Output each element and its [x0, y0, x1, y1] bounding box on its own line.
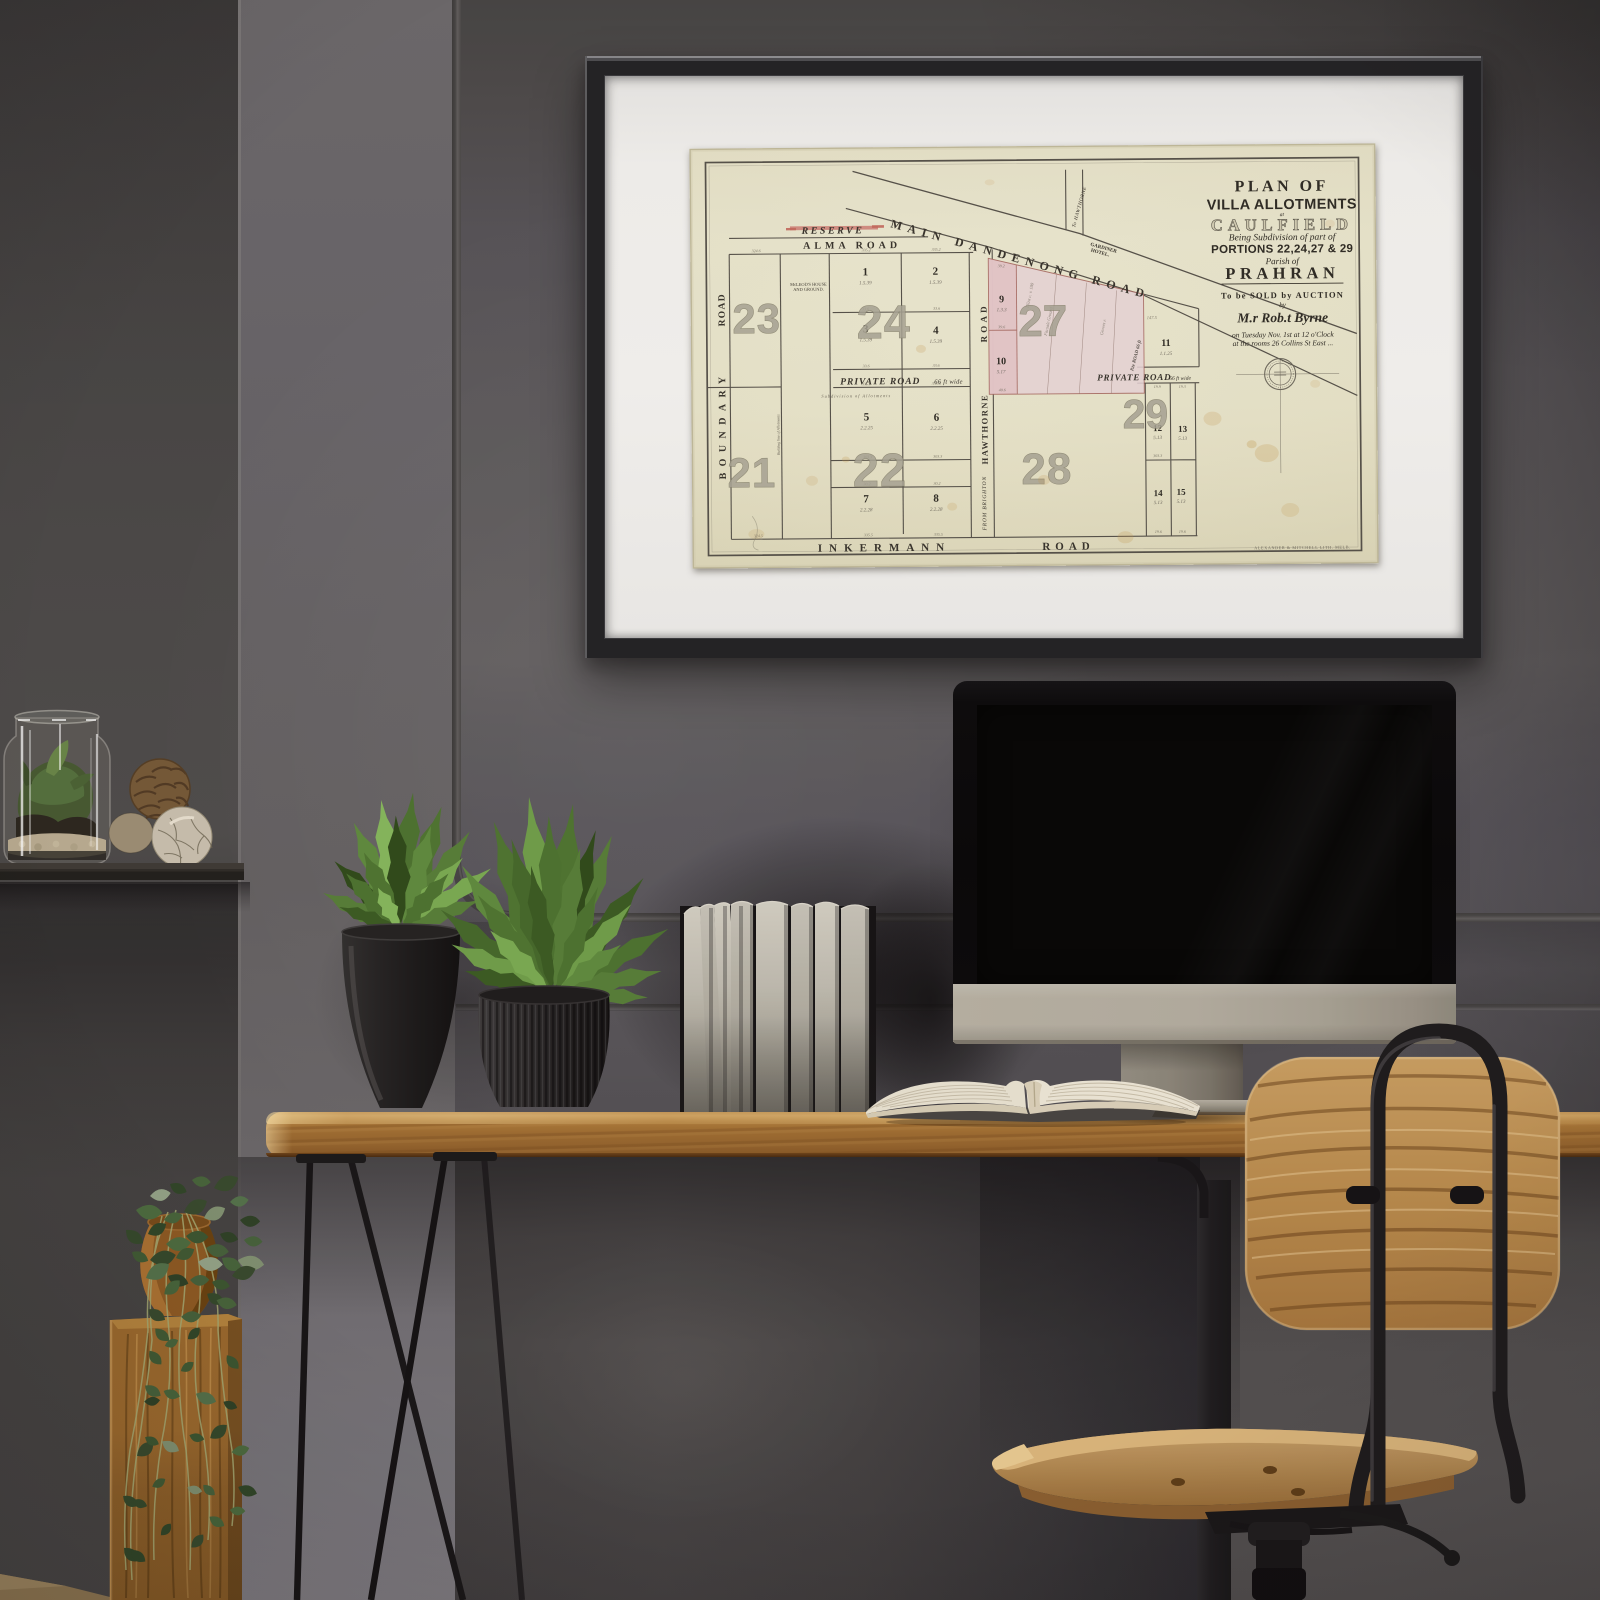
- svg-text:RESERVE: RESERVE: [801, 225, 865, 237]
- svg-text:6: 6: [934, 412, 940, 424]
- svg-text:PRIVATE ROAD: PRIVATE ROAD: [1097, 372, 1171, 383]
- svg-text:24: 24: [856, 295, 911, 348]
- svg-text:22: 22: [853, 443, 908, 496]
- svg-text:4: 4: [933, 325, 939, 337]
- svg-text:1.3.3: 1.3.3: [997, 308, 1008, 313]
- svg-text:15: 15: [1177, 487, 1187, 497]
- svg-text:1.5.39: 1.5.39: [930, 340, 943, 345]
- svg-text:335.5: 335.5: [864, 532, 873, 537]
- svg-text:INKERMANN: INKERMANN: [818, 542, 951, 555]
- svg-text:PRAHRAN: PRAHRAN: [1225, 263, 1339, 283]
- svg-text:14: 14: [1154, 488, 1164, 498]
- svg-text:Building line of Allotments: Building line of Allotments: [776, 414, 780, 455]
- svg-text:5.17: 5.17: [997, 370, 1006, 375]
- svg-text:39.2: 39.2: [998, 263, 1005, 268]
- svg-text:19.6: 19.6: [1155, 529, 1162, 534]
- svg-text:33.6: 33.6: [863, 363, 870, 368]
- svg-text:303.3: 303.3: [933, 454, 942, 459]
- svg-text:11: 11: [1161, 338, 1171, 349]
- svg-text:335.5: 335.5: [934, 532, 943, 537]
- svg-text:PRIVATE ROAD: PRIVATE ROAD: [840, 377, 920, 388]
- svg-text:1: 1: [863, 266, 869, 278]
- svg-text:8: 8: [933, 493, 939, 505]
- svg-text:M.r Rob.t Byrne: M.r Rob.t Byrne: [1236, 310, 1328, 326]
- svg-text:9: 9: [999, 294, 1004, 305]
- svg-text:147.5: 147.5: [1147, 315, 1158, 320]
- svg-text:AND GROUND.: AND GROUND.: [793, 287, 824, 292]
- svg-text:PORTIONS 22,24,27 & 29: PORTIONS 22,24,27 & 29: [1211, 243, 1353, 256]
- svg-text:1.5.39: 1.5.39: [929, 281, 942, 286]
- svg-text:1.1.25: 1.1.25: [1160, 352, 1173, 357]
- svg-text:Being Subdivision of part of: Being Subdivision of part of: [1229, 232, 1337, 244]
- svg-text:Subdivision of Allotments: Subdivision of Allotments: [821, 393, 891, 399]
- svg-text:10: 10: [996, 356, 1006, 367]
- svg-text:33.6: 33.6: [933, 363, 940, 368]
- svg-text:19.3: 19.3: [1179, 384, 1186, 389]
- svg-text:ALMA ROAD: ALMA ROAD: [803, 240, 901, 252]
- svg-text:19.6: 19.6: [1179, 529, 1186, 534]
- svg-text:27: 27: [1018, 297, 1067, 346]
- svg-text:2.2.25: 2.2.25: [930, 427, 943, 432]
- svg-text:29: 29: [1122, 391, 1168, 437]
- svg-text:303.3: 303.3: [1153, 453, 1162, 458]
- svg-text:FROM BRIGHTON: FROM BRIGHTON: [982, 476, 988, 531]
- svg-text:335.2: 335.2: [862, 247, 871, 252]
- svg-text:40.6: 40.6: [999, 387, 1006, 392]
- svg-text:ROAD: ROAD: [979, 304, 989, 342]
- svg-text:13: 13: [1178, 424, 1188, 434]
- svg-text:335.6: 335.6: [862, 381, 871, 386]
- svg-text:at the rooms 26 Collins St Eas: at the rooms 26 Collins St East ...: [1233, 338, 1334, 348]
- svg-text:2.2.25: 2.2.25: [860, 426, 873, 431]
- svg-text:335.2: 335.2: [932, 247, 941, 252]
- svg-text:5.13: 5.13: [1178, 437, 1187, 442]
- svg-text:HAWTHORNE: HAWTHORNE: [979, 394, 990, 464]
- svg-text:66 ft wide: 66 ft wide: [1169, 375, 1191, 382]
- svg-text:2: 2: [933, 266, 939, 278]
- svg-text:1.5.39: 1.5.39: [859, 281, 872, 286]
- svg-text:324.6: 324.6: [752, 248, 761, 253]
- svg-text:39.6: 39.6: [998, 324, 1005, 329]
- svg-text:19.9: 19.9: [1154, 384, 1161, 389]
- svg-text:28: 28: [1021, 445, 1072, 494]
- svg-text:30.2: 30.2: [933, 481, 940, 486]
- svg-text:2.2.28: 2.2.28: [930, 508, 943, 513]
- svg-text:ROAD: ROAD: [1042, 541, 1094, 553]
- svg-text:33.6: 33.6: [933, 306, 940, 311]
- svg-text:5.13: 5.13: [1154, 501, 1163, 506]
- svg-text:ALEXANDER & MITCHELL LITH. MEL: ALEXANDER & MITCHELL LITH. MELB.: [1254, 545, 1351, 551]
- svg-text:To be SOLD by AUCTION: To be SOLD by AUCTION: [1221, 290, 1344, 301]
- svg-text:335.6: 335.6: [932, 381, 941, 386]
- svg-text:5.13: 5.13: [1177, 500, 1186, 505]
- svg-text:by: by: [1279, 301, 1287, 309]
- svg-text:23: 23: [732, 295, 781, 342]
- svg-text:21: 21: [727, 449, 776, 496]
- svg-text:5: 5: [864, 411, 870, 423]
- svg-text:PLAN OF: PLAN OF: [1234, 178, 1328, 196]
- svg-text:ROAD: ROAD: [717, 292, 727, 326]
- svg-text:2.2.28: 2.2.28: [860, 508, 873, 513]
